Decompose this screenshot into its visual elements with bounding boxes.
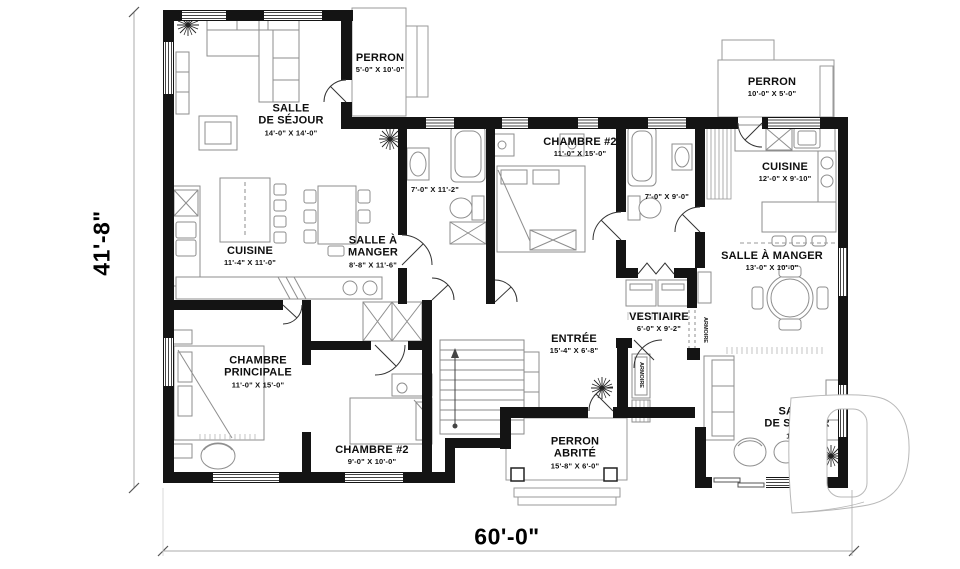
floor-plan-canvas: SALLE DE SÉJOUR 14'-0" X 14'-0" PERRON 5… (0, 0, 960, 569)
dimension-lines (0, 0, 960, 569)
